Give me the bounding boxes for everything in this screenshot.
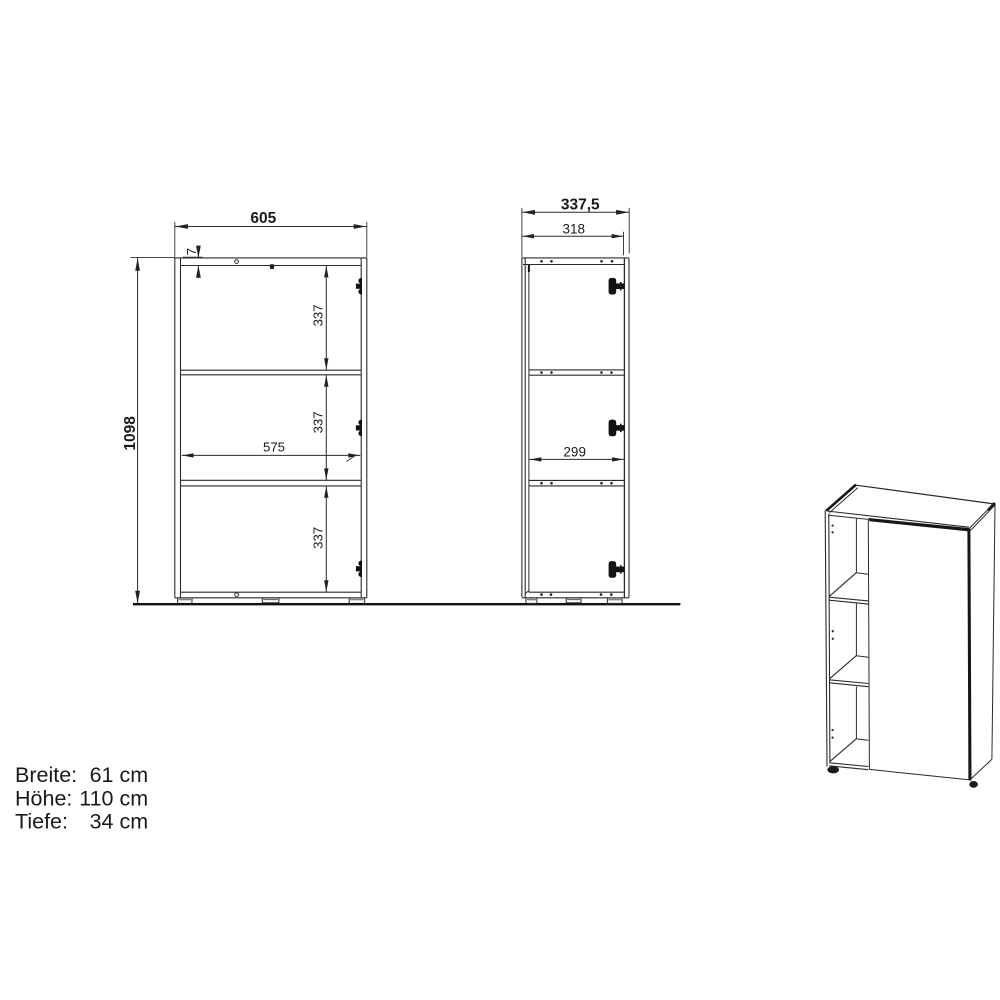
- svg-text:337: 337: [311, 304, 326, 326]
- svg-text:7: 7: [184, 248, 199, 255]
- svg-text:299: 299: [563, 445, 586, 460]
- svg-text:110: 110: [79, 786, 113, 810]
- svg-text:337: 337: [311, 527, 326, 549]
- svg-text:61: 61: [90, 763, 114, 787]
- svg-text:575: 575: [263, 440, 285, 455]
- svg-text:Höhe:: Höhe:: [15, 786, 72, 810]
- svg-text:Tiefe:: Tiefe:: [15, 810, 68, 834]
- svg-text:318: 318: [563, 221, 586, 236]
- svg-text:337: 337: [311, 411, 326, 433]
- svg-text:cm: cm: [120, 763, 149, 787]
- svg-text:34: 34: [90, 810, 114, 834]
- svg-text:337,5: 337,5: [561, 196, 600, 213]
- svg-text:cm: cm: [120, 786, 149, 810]
- svg-text:605: 605: [250, 210, 276, 227]
- svg-text:Breite:: Breite:: [15, 763, 77, 787]
- svg-text:cm: cm: [120, 810, 149, 834]
- svg-text:1098: 1098: [122, 416, 139, 451]
